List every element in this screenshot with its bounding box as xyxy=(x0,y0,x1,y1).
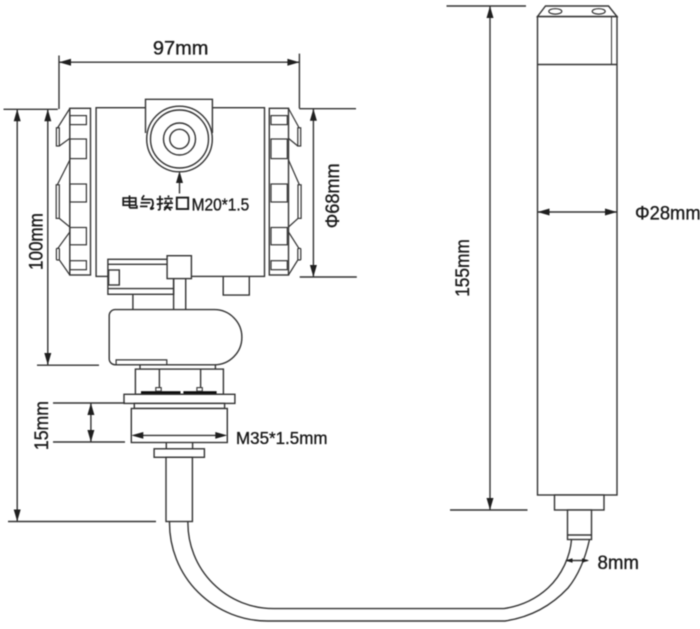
svg-text:8mm: 8mm xyxy=(598,553,639,574)
svg-text:97mm: 97mm xyxy=(153,38,209,59)
svg-text:155mm: 155mm xyxy=(453,239,474,297)
svg-text:M20*1.5: M20*1.5 xyxy=(192,195,250,215)
svg-text:15mm: 15mm xyxy=(32,401,53,450)
svg-text:Φ28mm: Φ28mm xyxy=(635,203,700,224)
svg-text:M35*1.5mm: M35*1.5mm xyxy=(236,428,328,448)
svg-text:100mm: 100mm xyxy=(26,213,47,270)
svg-text:Φ68mm: Φ68mm xyxy=(323,163,344,228)
